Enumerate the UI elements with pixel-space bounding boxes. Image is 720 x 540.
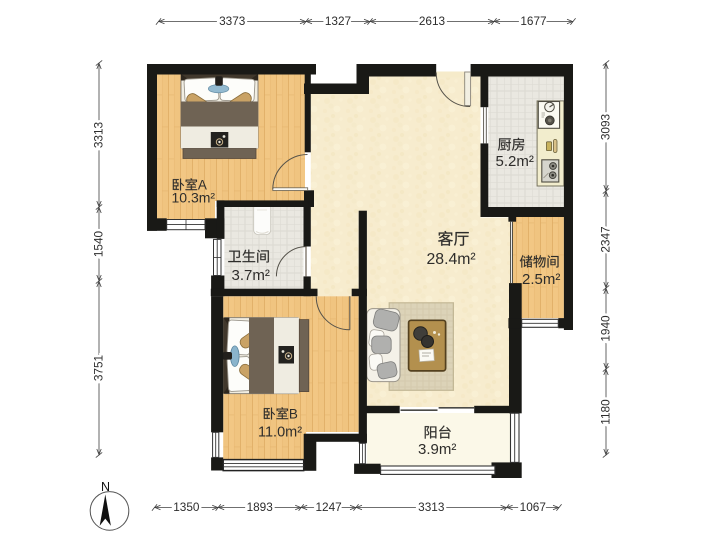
- svg-text:3093: 3093: [599, 113, 613, 140]
- svg-text:11.0m²: 11.0m²: [258, 425, 302, 441]
- svg-text:2347: 2347: [599, 226, 613, 252]
- svg-text:3313: 3313: [418, 500, 445, 514]
- svg-text:1327: 1327: [325, 14, 351, 28]
- svg-text:1540: 1540: [92, 230, 106, 257]
- svg-text:10.3m²: 10.3m²: [172, 190, 216, 206]
- svg-text:3373: 3373: [219, 14, 246, 28]
- svg-text:1067: 1067: [520, 500, 546, 514]
- svg-text:1940: 1940: [599, 315, 613, 342]
- svg-text:2613: 2613: [419, 14, 446, 28]
- svg-text:1893: 1893: [247, 500, 274, 514]
- svg-text:B: B: [289, 407, 298, 422]
- svg-text:3313: 3313: [92, 121, 106, 148]
- svg-text:N: N: [101, 480, 110, 494]
- svg-text:3.9m²: 3.9m²: [418, 441, 456, 458]
- svg-text:1677: 1677: [520, 14, 546, 28]
- svg-text:1180: 1180: [599, 399, 613, 425]
- svg-text:2.5m²: 2.5m²: [522, 271, 560, 288]
- svg-text:3751: 3751: [92, 355, 106, 381]
- svg-text:1247: 1247: [315, 500, 341, 514]
- svg-text:28.4m²: 28.4m²: [427, 251, 476, 268]
- svg-text:3.7m²: 3.7m²: [232, 267, 270, 284]
- svg-text:5.2m²: 5.2m²: [496, 153, 534, 170]
- svg-text:1350: 1350: [173, 500, 200, 514]
